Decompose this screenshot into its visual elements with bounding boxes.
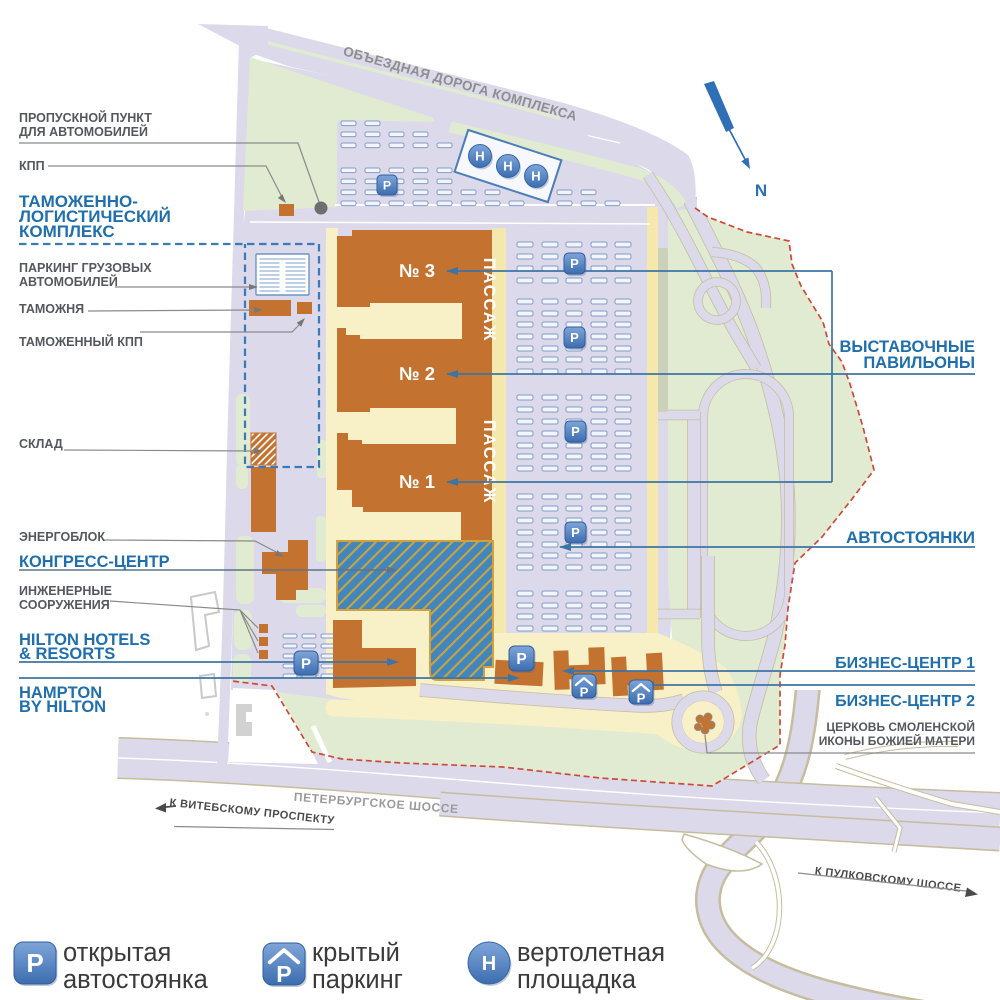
svg-text:СООРУЖЕНИЯ: СООРУЖЕНИЯ bbox=[19, 598, 110, 612]
svg-text:ИКОНЫ БОЖИЕЙ МАТЕРИ: ИКОНЫ БОЖИЕЙ МАТЕРИ bbox=[819, 733, 975, 748]
svg-text:АВТОСТОЯНКИ: АВТОСТОЯНКИ bbox=[846, 528, 975, 547]
svg-text:N: N bbox=[755, 181, 767, 200]
svg-text:КПП: КПП bbox=[19, 159, 45, 173]
svg-text:№ 3: № 3 bbox=[399, 260, 435, 281]
svg-text:вертолетная: вертолетная bbox=[517, 939, 665, 967]
svg-text:ПАРКИНГ ГРУЗОВЫХ: ПАРКИНГ ГРУЗОВЫХ bbox=[19, 261, 152, 275]
svg-text:H: H bbox=[531, 169, 540, 184]
svg-text:H: H bbox=[503, 159, 512, 174]
svg-text:P: P bbox=[516, 651, 526, 668]
svg-text:P: P bbox=[580, 684, 589, 699]
svg-text:P: P bbox=[570, 256, 579, 271]
svg-text:ЦЕРКОВЬ СМОЛЕНСКОЙ: ЦЕРКОВЬ СМОЛЕНСКОЙ bbox=[826, 719, 975, 734]
svg-text:паркинг: паркинг bbox=[312, 966, 403, 994]
svg-text:P: P bbox=[637, 690, 646, 705]
svg-text:ДЛЯ АВТОМОБИЛЕЙ: ДЛЯ АВТОМОБИЛЕЙ bbox=[19, 124, 148, 139]
svg-text:& RESORTS: & RESORTS bbox=[19, 645, 115, 663]
svg-text:№ 2: № 2 bbox=[399, 363, 435, 384]
svg-text:ПАВИЛЬОНЫ: ПАВИЛЬОНЫ bbox=[863, 354, 975, 372]
svg-text:открытая: открытая bbox=[63, 939, 171, 967]
svg-text:P: P bbox=[26, 948, 43, 978]
svg-text:P: P bbox=[571, 424, 580, 439]
svg-text:ПАССАЖ: ПАССАЖ bbox=[480, 420, 498, 504]
svg-text:P: P bbox=[571, 525, 580, 540]
svg-text:P: P bbox=[570, 330, 579, 345]
svg-text:ИНЖЕНЕРНЫЕ: ИНЖЕНЕРНЫЕ bbox=[19, 584, 112, 598]
svg-text:№ 1: № 1 bbox=[399, 471, 435, 492]
svg-text:P: P bbox=[276, 961, 291, 987]
svg-text:H: H bbox=[475, 149, 484, 164]
svg-text:автостоянка: автостоянка bbox=[63, 966, 209, 994]
svg-text:BY HILTON: BY HILTON bbox=[19, 698, 106, 716]
svg-text:H: H bbox=[482, 953, 496, 975]
svg-text:P: P bbox=[383, 178, 391, 192]
svg-text:ТАМОЖНЯ: ТАМОЖНЯ bbox=[19, 302, 84, 316]
svg-text:АВТОМОБИЛЕЙ: АВТОМОБИЛЕЙ bbox=[19, 274, 118, 289]
svg-text:КОНГРЕСС-ЦЕНТР: КОНГРЕСС-ЦЕНТР bbox=[19, 553, 170, 571]
svg-text:площадка: площадка bbox=[517, 966, 637, 994]
svg-text:БИЗНЕС-ЦЕНТР 2: БИЗНЕС-ЦЕНТР 2 bbox=[835, 693, 975, 710]
svg-text:БИЗНЕС-ЦЕНТР 1: БИЗНЕС-ЦЕНТР 1 bbox=[835, 655, 975, 672]
svg-text:крытый: крытый bbox=[312, 939, 400, 967]
svg-text:ТАМОЖЕННЫЙ КПП: ТАМОЖЕННЫЙ КПП bbox=[19, 334, 143, 349]
svg-text:СКЛАД: СКЛАД bbox=[19, 437, 63, 451]
svg-text:P: P bbox=[301, 656, 311, 672]
svg-text:ПРОПУСКНОЙ ПУНКТ: ПРОПУСКНОЙ ПУНКТ bbox=[19, 110, 152, 125]
svg-text:ЭНЕРГОБЛОК: ЭНЕРГОБЛОК bbox=[19, 530, 105, 544]
svg-text:КОМПЛЕКС: КОМПЛЕКС bbox=[19, 222, 115, 241]
